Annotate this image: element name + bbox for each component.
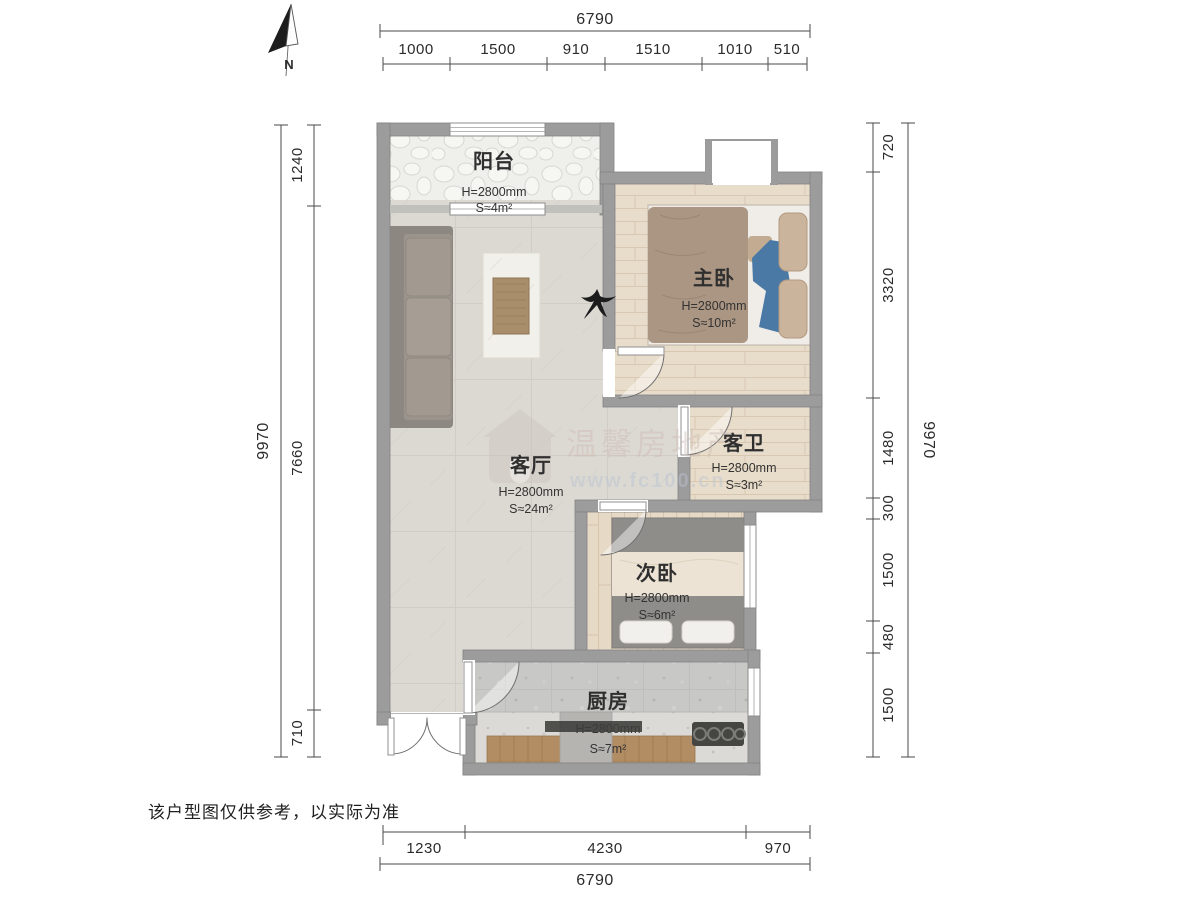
dim-left-seg-1: 7660 <box>289 440 306 475</box>
coffee-table <box>483 253 540 358</box>
svg-text:H=2800mm: H=2800mm <box>625 591 690 605</box>
dim-top-seg-2: 910 <box>563 41 590 58</box>
dim-right-seg-5: 480 <box>880 624 897 651</box>
master-pillow-2 <box>779 280 807 338</box>
stove <box>692 722 745 746</box>
svg-text:阳台: 阳台 <box>473 149 515 173</box>
dim-left-total: 9970 <box>255 422 272 460</box>
svg-text:S≈6m²: S≈6m² <box>639 608 676 622</box>
svg-text:H=2800mm: H=2800mm <box>499 485 564 499</box>
dim-left-seg-2: 710 <box>289 720 306 747</box>
dim-top-seg-4: 1010 <box>717 41 752 58</box>
dim-left-seg-0: 1240 <box>289 147 306 182</box>
balcony-rail-right <box>545 205 602 213</box>
svg-text:客厅: 客厅 <box>509 453 552 477</box>
svg-text:次卧: 次卧 <box>636 561 678 585</box>
dim-top-seg-1: 1500 <box>480 41 515 58</box>
dim-bottom-total: 6790 <box>576 872 614 889</box>
watermark-line1: 温馨房地产 <box>566 427 741 462</box>
kitchen-window <box>748 668 760 716</box>
dim-top-seg-0: 1000 <box>398 41 433 58</box>
svg-text:S≈3m²: S≈3m² <box>726 478 763 492</box>
svg-text:H=2800mm: H=2800mm <box>682 299 747 313</box>
dim-right-seg-4: 1500 <box>880 552 897 587</box>
second-bedroom-window <box>744 525 756 608</box>
dim-top-seg-5: 510 <box>774 41 801 58</box>
dim-bottom-seg-2: 970 <box>765 840 792 857</box>
dim-right-seg-1: 3320 <box>880 267 897 302</box>
entry-double-door <box>388 712 466 755</box>
north-arrow: N <box>268 4 298 76</box>
svg-text:S≈4m²: S≈4m² <box>476 201 513 215</box>
second-pillow-1 <box>620 621 672 643</box>
master-pillow-1 <box>779 213 807 271</box>
dim-top-seg-3: 1510 <box>635 41 670 58</box>
svg-text:厨房: 厨房 <box>587 689 629 713</box>
north-label: N <box>284 57 293 72</box>
second-pillow-2 <box>682 621 734 643</box>
cabinet-left <box>487 736 562 762</box>
balcony-top-window <box>450 123 545 136</box>
floor-plan-page: 温馨房地产 www.fc100.cn 阳台 H=2800mm S≈4m² 主卧 … <box>0 0 1200 900</box>
svg-text:S≈24m²: S≈24m² <box>509 502 553 516</box>
svg-text:S≈7m²: S≈7m² <box>590 742 627 756</box>
dim-right-seg-2: 1480 <box>880 430 897 465</box>
svg-text:客卫: 客卫 <box>722 431 765 455</box>
disclaimer-text: 该户型图仅供参考，以实际为准 <box>148 803 400 822</box>
bay-window <box>706 140 777 185</box>
svg-text:H=2800mm: H=2800mm <box>462 185 527 199</box>
dim-top-total: 6790 <box>576 11 614 28</box>
dim-right-seg-3: 300 <box>880 495 897 522</box>
dim-right-total: 9970 <box>920 421 937 459</box>
svg-text:H=2800mm: H=2800mm <box>712 461 777 475</box>
floor-plan-canvas: 温馨房地产 www.fc100.cn 阳台 H=2800mm S≈4m² 主卧 … <box>0 0 1200 900</box>
dim-right-seg-6: 1500 <box>880 687 897 722</box>
dim-right-seg-0: 720 <box>880 134 897 161</box>
dim-bottom-seg-0: 1230 <box>406 840 441 857</box>
balcony-rail-left <box>390 205 450 213</box>
dim-bottom-seg-1: 4230 <box>587 840 622 857</box>
sofa <box>383 226 453 428</box>
svg-text:S≈10m²: S≈10m² <box>692 316 736 330</box>
range-hood-bar <box>545 721 642 732</box>
svg-text:主卧: 主卧 <box>693 266 735 290</box>
watermark-line2: www.fc100.cn <box>569 470 726 492</box>
